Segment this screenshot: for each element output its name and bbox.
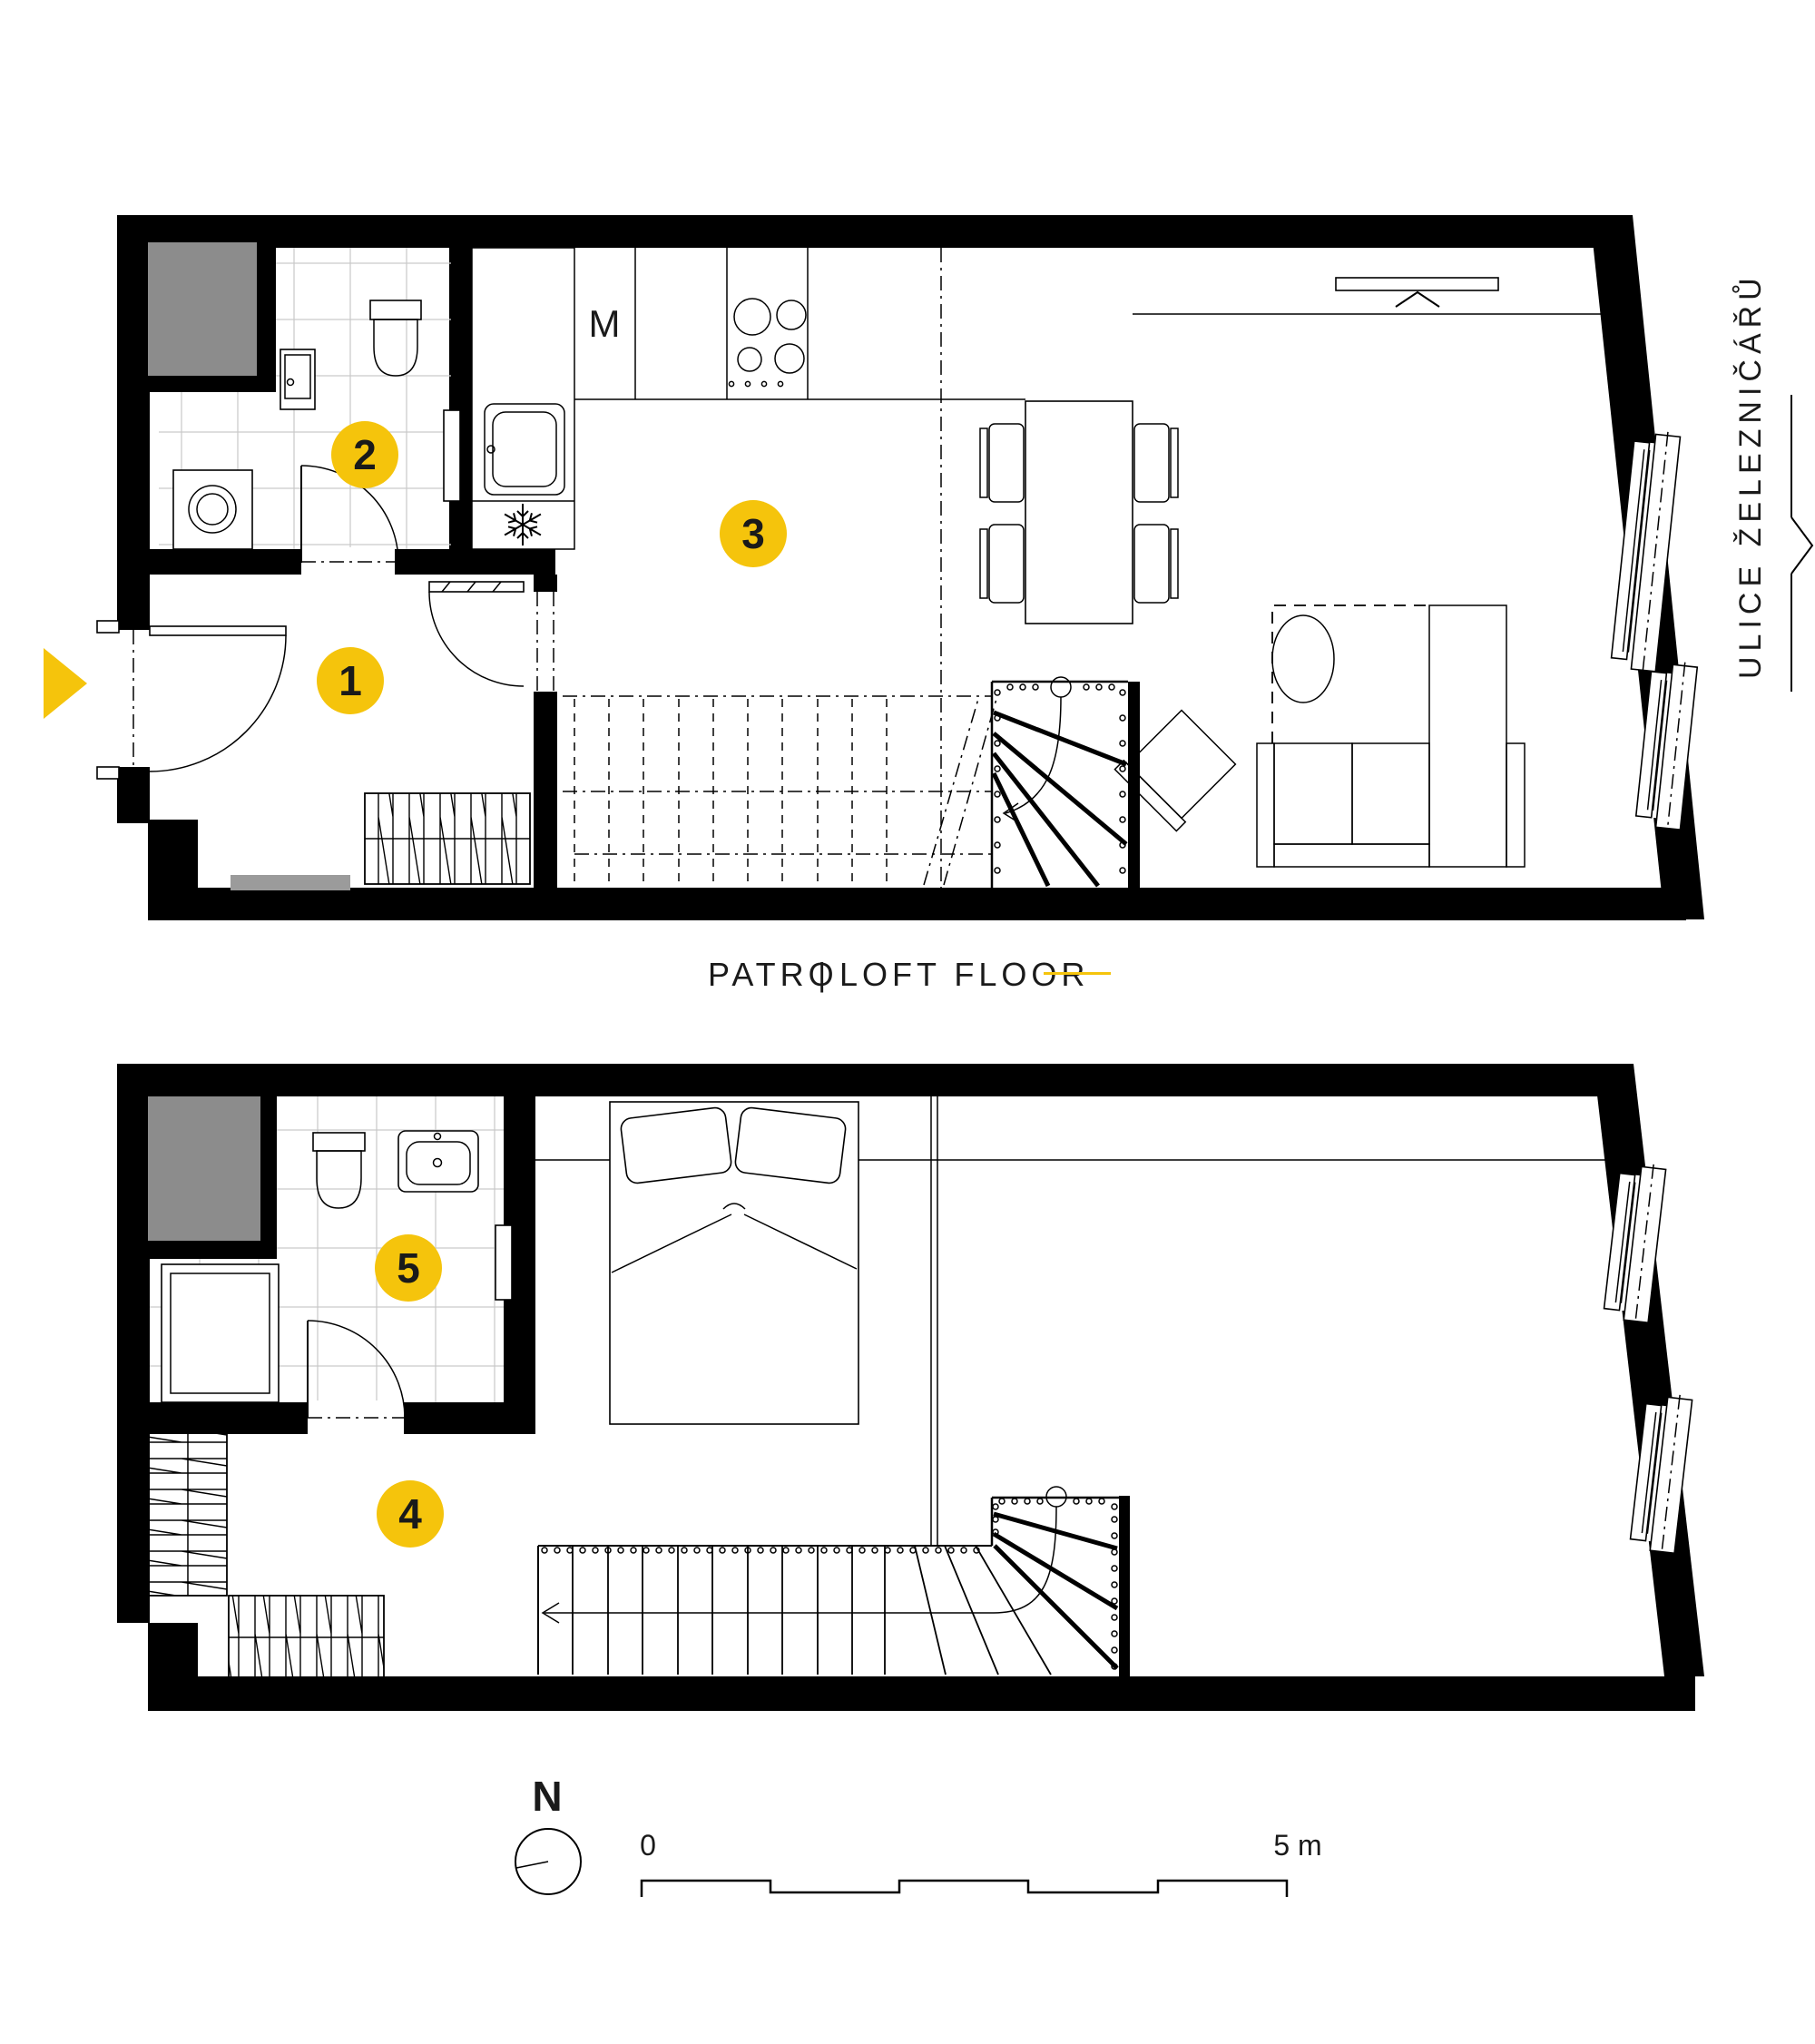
stair-walkline [543, 1487, 1066, 1623]
floor-label-rule [1044, 972, 1111, 975]
loft-floor-plan: 4 5 [117, 1064, 1704, 1711]
floor-plan-drawing: M [0, 0, 1815, 2044]
svg-text:1: 1 [338, 657, 362, 704]
street-label: ULICE ŽELEZNIČÁŘŮ [1732, 272, 1812, 692]
microwave-label: M [589, 302, 621, 345]
loft-wardrobe-tall [148, 1432, 227, 1596]
loft-wardrobe-low [229, 1596, 384, 1679]
room-marker-1: 1 [317, 647, 384, 714]
tv [1336, 278, 1498, 290]
utility-shaft [148, 242, 257, 376]
hall-living-glazed-door [429, 582, 554, 692]
entry-door [97, 621, 286, 779]
coffee-table [1272, 615, 1334, 703]
room-marker-2: 2 [331, 421, 398, 488]
kitchen-sink [485, 404, 564, 495]
lounge [1114, 605, 1525, 867]
freezer-snowflake-icon [502, 504, 544, 545]
tv-chevron-icon [1396, 292, 1439, 307]
street-direction-icon [1791, 395, 1812, 692]
toilet [313, 1133, 365, 1208]
street-name: ULICE ŽELEZNIČÁŘŮ [1732, 272, 1768, 679]
bathroom-sink [280, 349, 315, 409]
dining-table [1025, 401, 1133, 624]
floor-plan-page: M [0, 0, 1815, 2044]
utility-shaft [148, 1096, 260, 1241]
svg-text:5: 5 [397, 1244, 420, 1292]
compass-north-label: N [532, 1773, 562, 1820]
scale-bar: 0 5 m [640, 1829, 1322, 1897]
double-bed [610, 1102, 858, 1424]
pillow [734, 1106, 847, 1184]
bathroom-sink [398, 1131, 478, 1192]
stair-stringer [1119, 1496, 1130, 1676]
bathroom-door [308, 1321, 405, 1436]
room-marker-4: 4 [377, 1480, 444, 1548]
compass: N [515, 1773, 581, 1894]
compass-needle [516, 1862, 548, 1868]
room-marker-5: 5 [375, 1234, 442, 1302]
cooktop [729, 299, 806, 387]
scale-bar-steps [642, 1881, 1287, 1897]
rug-outline [1272, 605, 1429, 743]
washing-machine [173, 470, 252, 549]
door-mat [231, 875, 350, 890]
sofa [1257, 605, 1525, 867]
room-marker-3: 3 [720, 500, 787, 567]
bathroom-niche [495, 1225, 512, 1300]
hall-living-wall [534, 692, 557, 888]
void-railing [931, 1096, 937, 1546]
dining-set [980, 401, 1178, 624]
bathroom-wall-right [449, 248, 472, 549]
entrance-arrow-icon [44, 648, 87, 719]
svg-text:3: 3 [741, 510, 765, 557]
floor-label-divider: | [818, 956, 826, 993]
svg-text:2: 2 [353, 431, 377, 478]
entry-wardrobe [365, 793, 530, 884]
toilet [370, 300, 421, 376]
floor-label: PATRO | LOFT FLOOR [708, 956, 1111, 993]
shower [162, 1264, 279, 1402]
staircase-loft [538, 1487, 1119, 1675]
svg-text:4: 4 [398, 1490, 422, 1538]
bathroom-niche [444, 410, 460, 501]
scale-end-label: 5 m [1273, 1829, 1321, 1862]
ground-floor-plan: M [44, 215, 1704, 920]
pillow [620, 1106, 732, 1184]
scale-start-label: 0 [640, 1829, 656, 1862]
staircase-ground [563, 677, 1128, 888]
media-wall [1133, 278, 1612, 314]
